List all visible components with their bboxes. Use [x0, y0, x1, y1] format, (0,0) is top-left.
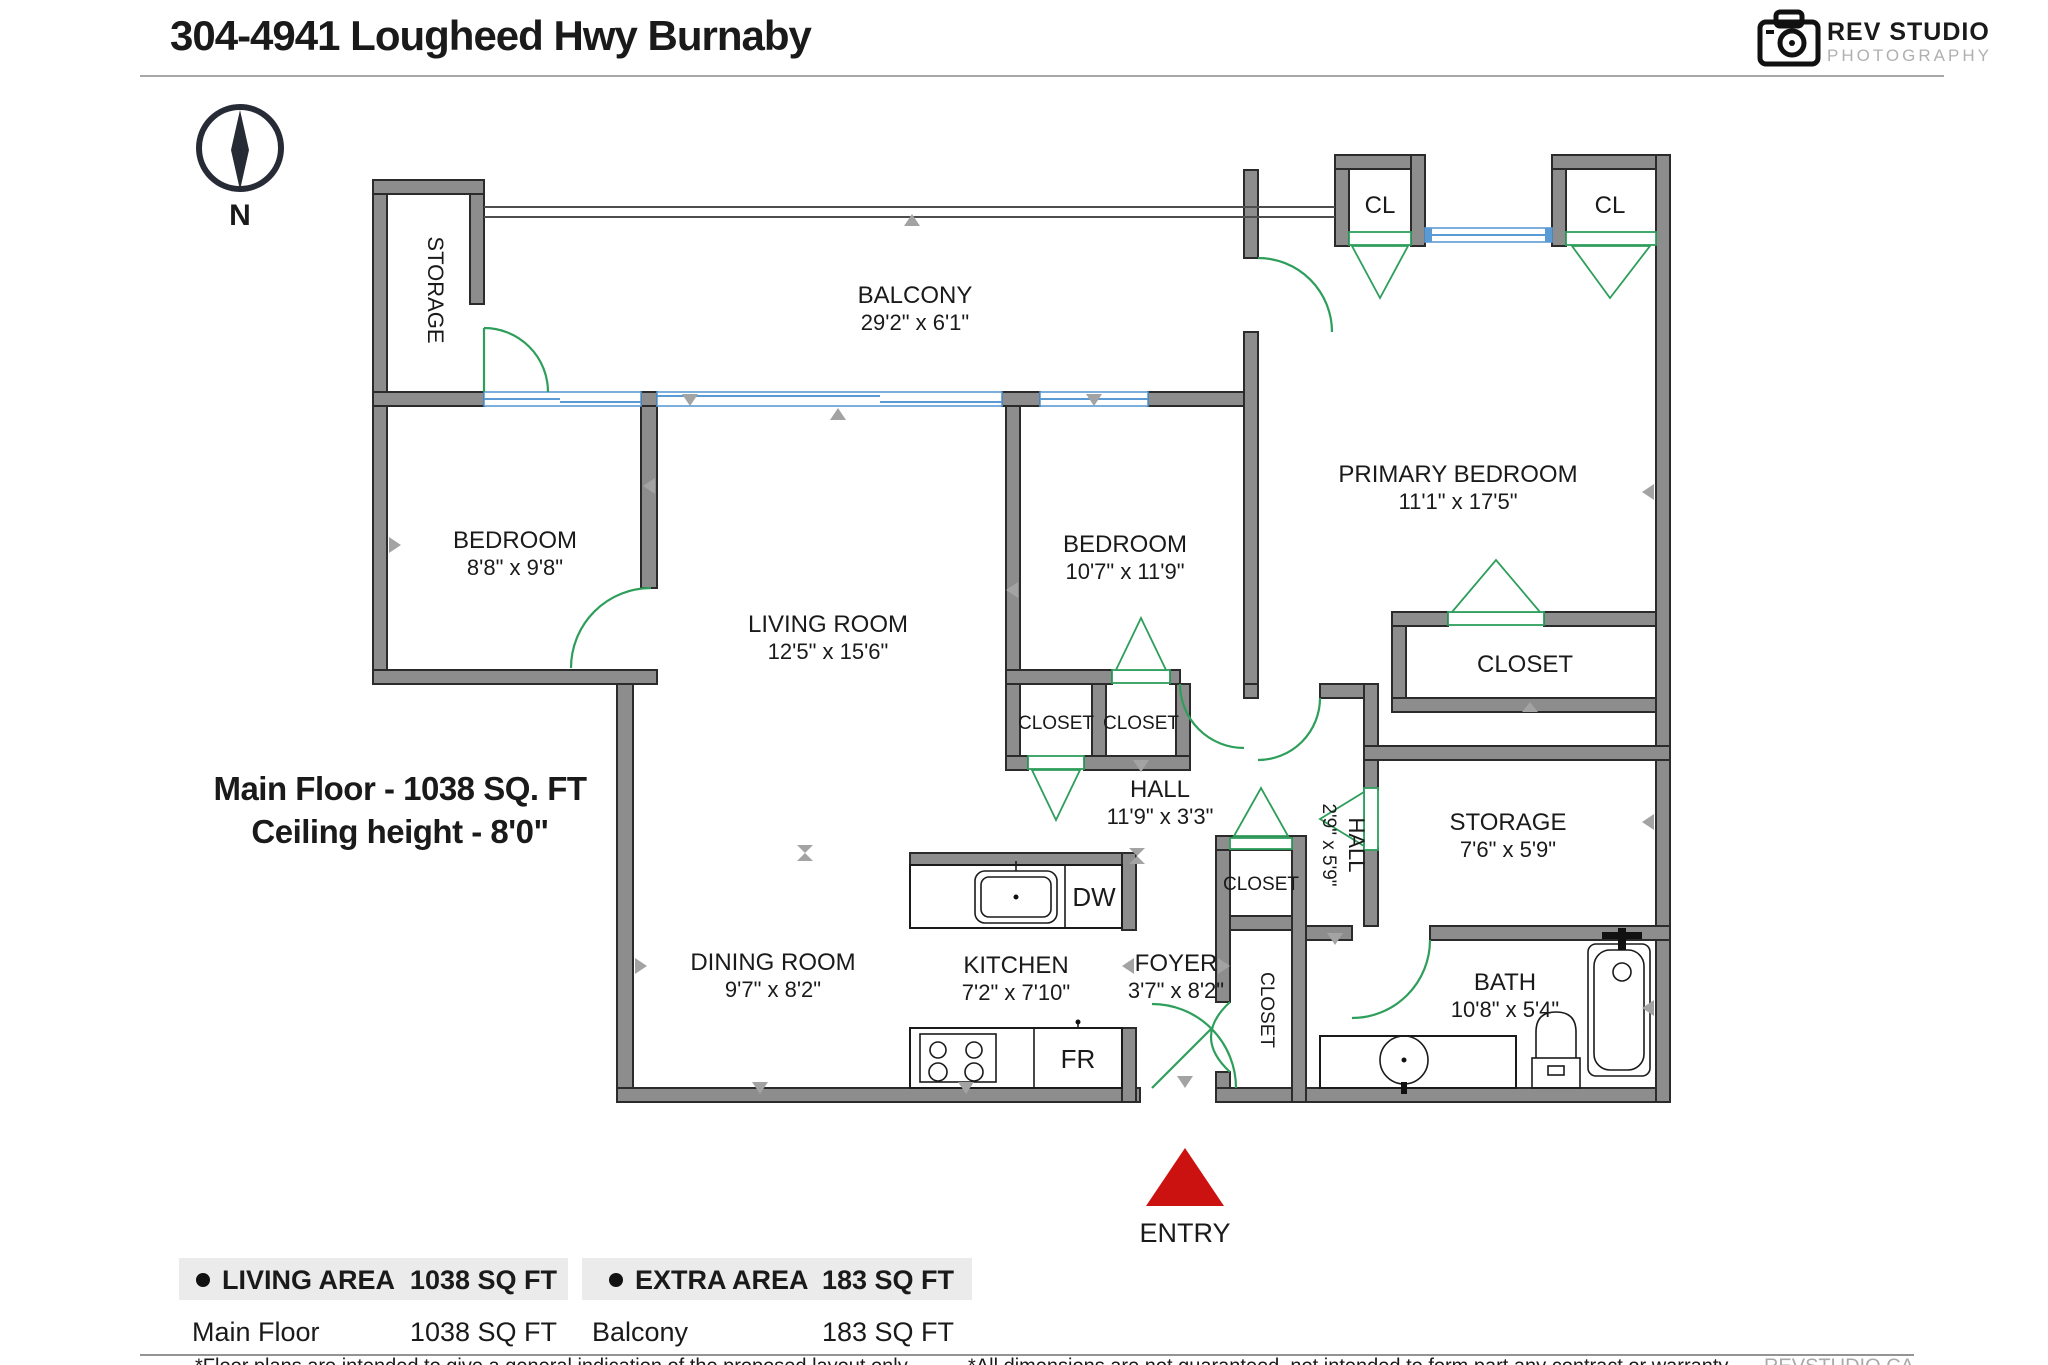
room-label-foyer-closet: CLOSET — [1223, 874, 1299, 895]
footer-brand: REVSTUDIO.CA — [1764, 1356, 1915, 1365]
room-label-foyer: FOYER — [1135, 950, 1218, 977]
floorplan-page: 304-4941 Lougheed Hwy Burnaby REV STUDIO… — [0, 0, 2048, 1365]
room-dims-foyer: 3'7" x 8'2" — [1128, 978, 1224, 1003]
entry-arrow-icon — [1146, 1148, 1224, 1206]
camera-icon — [1760, 12, 1818, 64]
room-label-foyer-closet2: CLOSET — [1256, 972, 1277, 1048]
footer-note-2: *All dimensions are not guaranteed, not … — [968, 1356, 1733, 1365]
compass-icon: N — [199, 107, 281, 232]
room-label-primary-closet: CLOSET — [1477, 651, 1573, 678]
room-dims-hall2: 2'9" x 5'9" — [1318, 803, 1339, 886]
room-dims-primary: 11'1" x 17'5" — [1398, 489, 1517, 514]
room-label-hall2: HALL — [1344, 817, 1369, 872]
logo-subtitle: PHOTOGRAPHY — [1827, 46, 1992, 65]
logo-name: REV STUDIO — [1827, 18, 1990, 46]
room-label-primary: PRIMARY BEDROOM — [1338, 461, 1577, 488]
room-label-dining: DINING ROOM — [690, 949, 855, 976]
room-label-kitchen: KITCHEN — [963, 952, 1068, 979]
room-label-storage-top: STORAGE — [423, 236, 448, 343]
legend-extra-row-label: Balcony — [592, 1317, 689, 1347]
legend-extra-header: EXTRA AREA — [635, 1265, 809, 1295]
floor-info-line2: Ceiling height - 8'0" — [251, 813, 548, 850]
dishwasher-label: DW — [1072, 882, 1116, 912]
legend-living-bullet-icon — [196, 1273, 210, 1287]
legend-extra-total: 183 SQ FT — [822, 1265, 955, 1295]
floor-info-line1: Main Floor - 1038 SQ. FT — [213, 770, 586, 807]
room-label-balcony: BALCONY — [858, 282, 973, 309]
room-label-bedroom1: BEDROOM — [453, 527, 577, 554]
room-label-closet-a: CLOSET — [1018, 713, 1094, 734]
room-dims-living: 12'5" x 15'6" — [768, 639, 889, 664]
room-dims-dining: 9'7" x 8'2" — [725, 977, 821, 1002]
room-label-cl-2: CL — [1595, 192, 1626, 219]
room-label-cl-1: CL — [1365, 192, 1396, 219]
fridge-label: FR — [1061, 1044, 1096, 1074]
room-dims-kitchen: 7'2" x 7'10" — [962, 980, 1070, 1005]
room-label-closet-b: CLOSET — [1103, 713, 1179, 734]
room-dims-storage2: 7'6" x 5'9" — [1460, 837, 1556, 862]
balcony-railing — [484, 207, 1335, 217]
area-legend: LIVING AREA 1038 SQ FT EXTRA AREA 183 SQ… — [179, 1258, 972, 1347]
legend-extra-row-value: 183 SQ FT — [822, 1317, 954, 1347]
room-dims-balcony: 29'2" x 6'1" — [861, 310, 969, 335]
footer: *Floor plans are intended to give a gene… — [140, 1355, 1915, 1365]
entry-marker: ENTRY — [1139, 1148, 1230, 1248]
page-title: 304-4941 Lougheed Hwy Burnaby — [170, 12, 813, 59]
room-label-bath: BATH — [1474, 969, 1536, 996]
floorplan-canvas: 304-4941 Lougheed Hwy Burnaby REV STUDIO… — [0, 0, 2048, 1365]
room-dims-bedroom1: 8'8" x 9'8" — [467, 555, 563, 580]
legend-living-header: LIVING AREA — [222, 1265, 395, 1295]
room-label-living: LIVING ROOM — [748, 611, 908, 638]
room-dims-bedroom2: 10'7" x 11'9" — [1065, 559, 1184, 584]
room-label-storage2: STORAGE — [1450, 809, 1567, 836]
compass-north-label: N — [229, 199, 251, 232]
room-dims-bath: 10'8" x 5'4" — [1451, 997, 1559, 1022]
room-label-hall1: HALL — [1130, 776, 1190, 803]
footer-note-1: *Floor plans are intended to give a gene… — [195, 1356, 912, 1365]
legend-living-total: 1038 SQ FT — [410, 1265, 558, 1295]
rev-studio-logo: REV STUDIO PHOTOGRAPHY — [1760, 12, 1992, 65]
room-dims-hall1: 11'9" x 3'3" — [1107, 804, 1214, 829]
room-label-bedroom2: BEDROOM — [1063, 531, 1187, 558]
legend-living-row-label: Main Floor — [192, 1317, 320, 1347]
legend-living-row-value: 1038 SQ FT — [410, 1317, 557, 1347]
legend-extra-bullet-icon — [609, 1273, 623, 1287]
entry-label: ENTRY — [1139, 1218, 1230, 1248]
